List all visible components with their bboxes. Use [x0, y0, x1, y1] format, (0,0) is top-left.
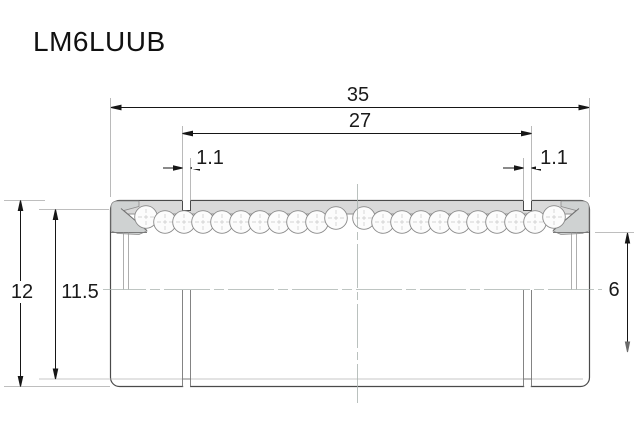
part-number-title: LM6LUUB	[33, 28, 166, 56]
bearing-section-drawing	[0, 0, 640, 440]
dim-label-bore-diameter: 6	[602, 279, 626, 301]
dim-label-groove-width-left: 1.1	[192, 147, 228, 169]
technical-drawing-page: LM6LUUB 35 27 1.1 1.1 12 11.5 6	[0, 0, 640, 440]
dim-label-groove-diameter: 11.5	[57, 281, 103, 303]
snap-ring-groove-left-top	[182, 196, 191, 211]
dimension-bore-diameter	[625, 233, 629, 352]
dim-label-groove-spacing: 27	[342, 110, 378, 132]
snap-ring-groove-right-top	[523, 196, 532, 211]
dim-label-outer-diameter: 12	[5, 281, 39, 303]
dim-label-overall-length: 35	[340, 84, 376, 106]
dim-label-groove-width-right: 1.1	[536, 147, 572, 169]
